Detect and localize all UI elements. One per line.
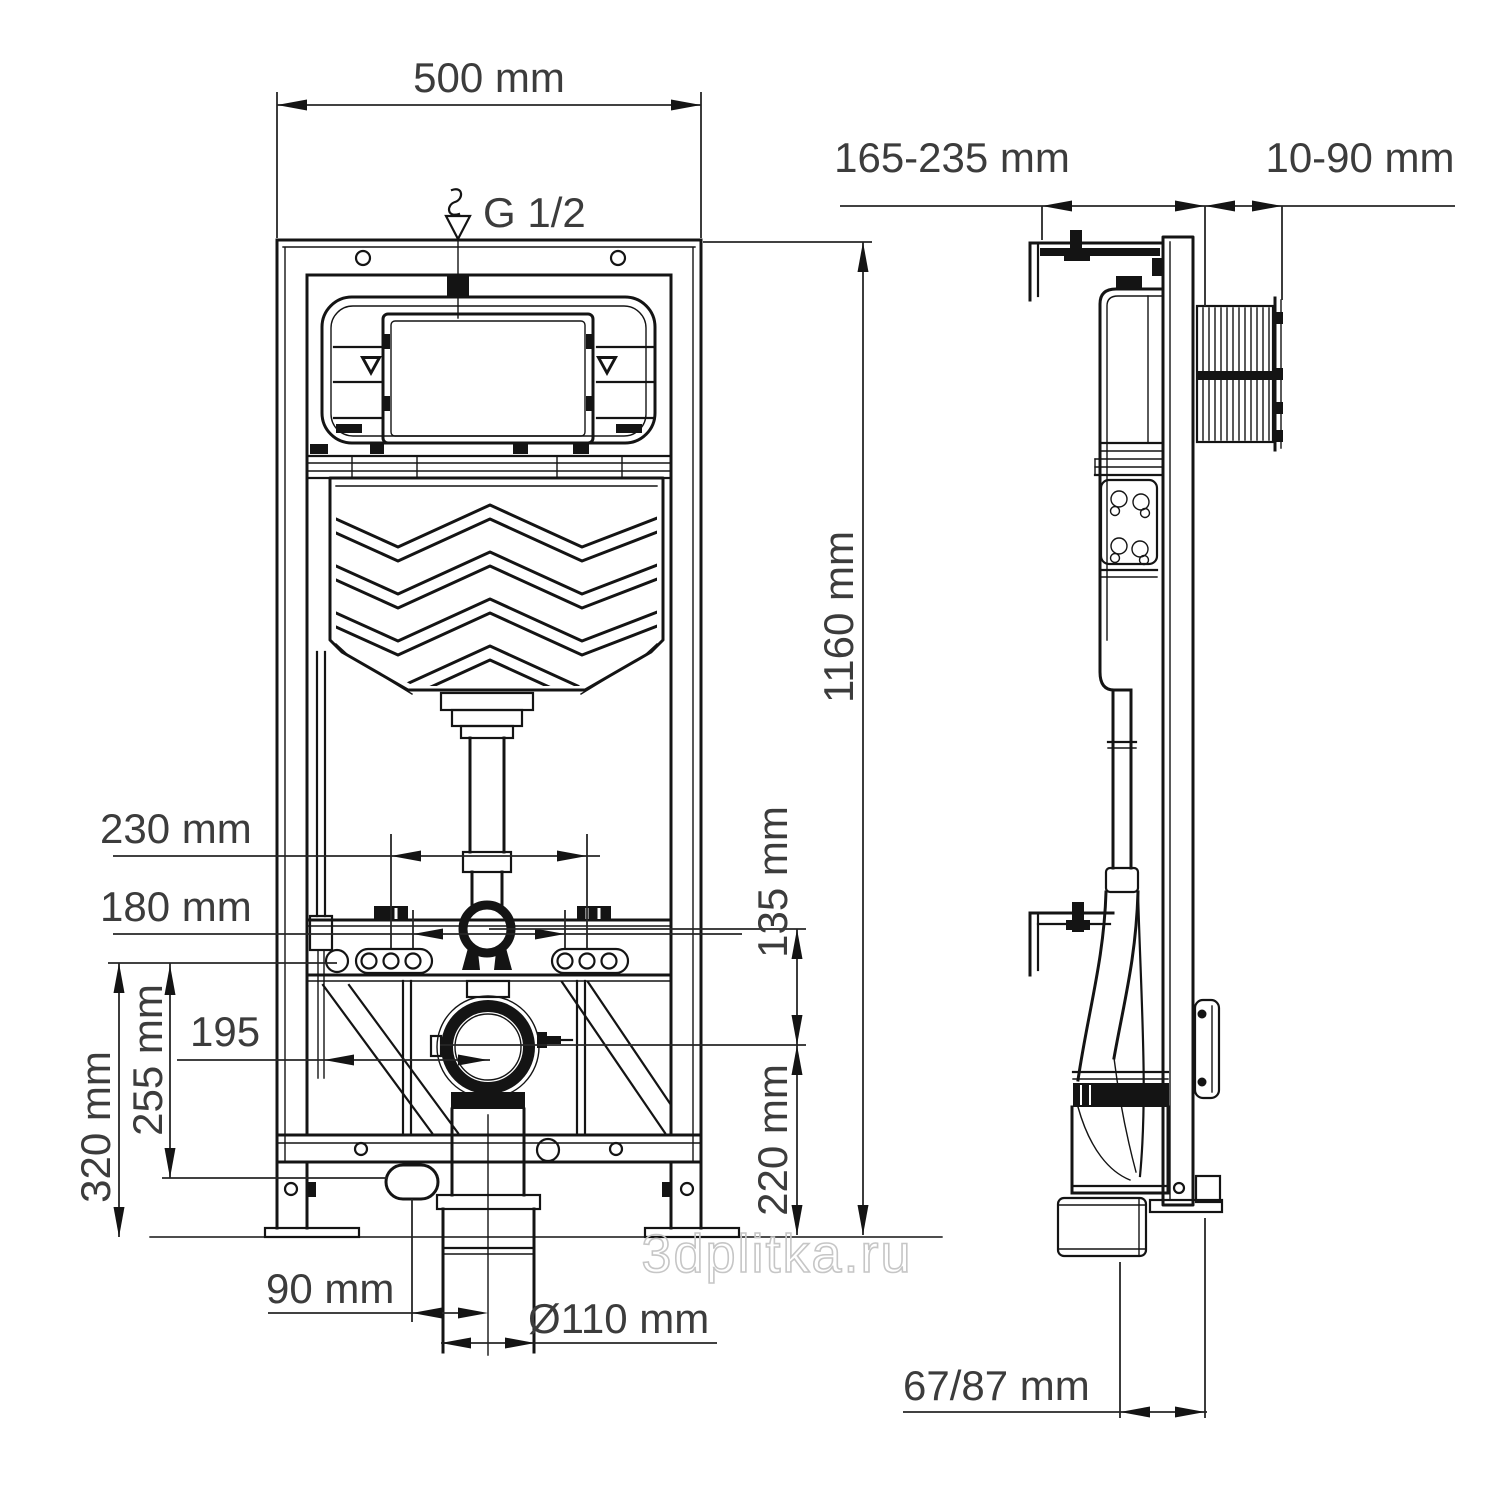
hanger-hole-right [611, 251, 625, 265]
dim-drain-diameter: Ø110 mm [441, 1295, 717, 1349]
dim-label-frame-width: 500 mm [413, 54, 565, 101]
dim-label-flush-to-outlet: 135 mm [749, 806, 796, 958]
bellows [1197, 298, 1283, 450]
dim-label-plate-depth: 10-90 mm [1265, 134, 1454, 181]
dim-supply-heights: 320 mm 255 mm [72, 963, 388, 1237]
dim-drain-offset: 90 mm [266, 1199, 488, 1322]
dim-label-water-inlet: G 1/2 [483, 189, 586, 236]
drain-outlet-stub [1058, 1198, 1146, 1256]
drain-clamp-band [1073, 1083, 1169, 1107]
foot-plate-left [265, 1228, 359, 1237]
mounting-plate [1195, 1000, 1219, 1098]
dimensions: 500 mm G 1/2 165-235 mm 10-90 mm 1160 mm [72, 54, 1455, 1418]
dim-wall-distance: 165-235 mm 10-90 mm [834, 134, 1455, 306]
cistern-waves [336, 505, 660, 702]
dim-label-trap-height: 255 mm [124, 984, 171, 1136]
flush-unit-box [310, 297, 655, 454]
water-squiggle-icon [449, 189, 461, 215]
inlet-oval [386, 1165, 438, 1199]
top-crossbar [277, 240, 701, 275]
dim-label-anchor-span-inner: 180 mm [100, 883, 252, 930]
mid-crossbar [307, 456, 671, 478]
dim-label-anchor-span-outer: 230 mm [100, 805, 252, 852]
keyhole-plate [1101, 480, 1157, 564]
hanger-hole-left [356, 251, 370, 265]
leg-bolt-right [681, 1183, 693, 1195]
dim-outlet-depth: 67/87 mm [903, 1218, 1207, 1418]
side-cistern [1095, 276, 1163, 690]
technical-drawing: 500 mm G 1/2 165-235 mm 10-90 mm 1160 mm [0, 0, 1504, 1504]
leg-bolt-left [285, 1183, 297, 1195]
side-rail [1163, 237, 1193, 1205]
cistern-tank [330, 478, 663, 702]
side-view [1030, 230, 1283, 1256]
dim-label-wall-distance: 165-235 mm [834, 134, 1070, 181]
dim-label-drain-offset: 90 mm [266, 1265, 394, 1312]
access-window [383, 314, 593, 443]
dim-flush-to-outlet: 135 mm 220 mm [440, 806, 806, 1235]
dim-label-outlet-height: 220 mm [749, 1064, 796, 1216]
watermark: 3dplitka.ru [641, 1224, 912, 1284]
dim-label-drain-diameter: Ø110 mm [528, 1295, 709, 1342]
supply-pipe [310, 652, 332, 1078]
dim-anchor-span-inner: 180 mm [100, 883, 742, 948]
dim-label-supply-offset: 195 [190, 1008, 260, 1055]
anchor-plate-right [577, 906, 611, 921]
waste-clamp-band [451, 1092, 525, 1109]
bottom-rail-feet [150, 1135, 942, 1237]
side-drain [1058, 1072, 1169, 1256]
wall-bracket-bottom [1030, 902, 1113, 975]
supply-hole [326, 950, 348, 972]
inlet-triangle-icon [446, 216, 470, 239]
frame-rails [277, 240, 701, 1162]
water-inlet [446, 189, 470, 318]
dim-label-supply-height: 320 mm [72, 1051, 119, 1203]
dim-label-frame-height: 1160 mm [815, 531, 862, 703]
waste-pipe-ring [447, 1006, 529, 1088]
drain-pipe [386, 1115, 540, 1355]
dim-label-outlet-depth: 67/87 mm [903, 1362, 1090, 1409]
front-view [150, 189, 942, 1355]
cistern-cap [1116, 276, 1142, 290]
bracket-bolt-top [1070, 230, 1082, 254]
inlet-fitting [447, 276, 469, 298]
